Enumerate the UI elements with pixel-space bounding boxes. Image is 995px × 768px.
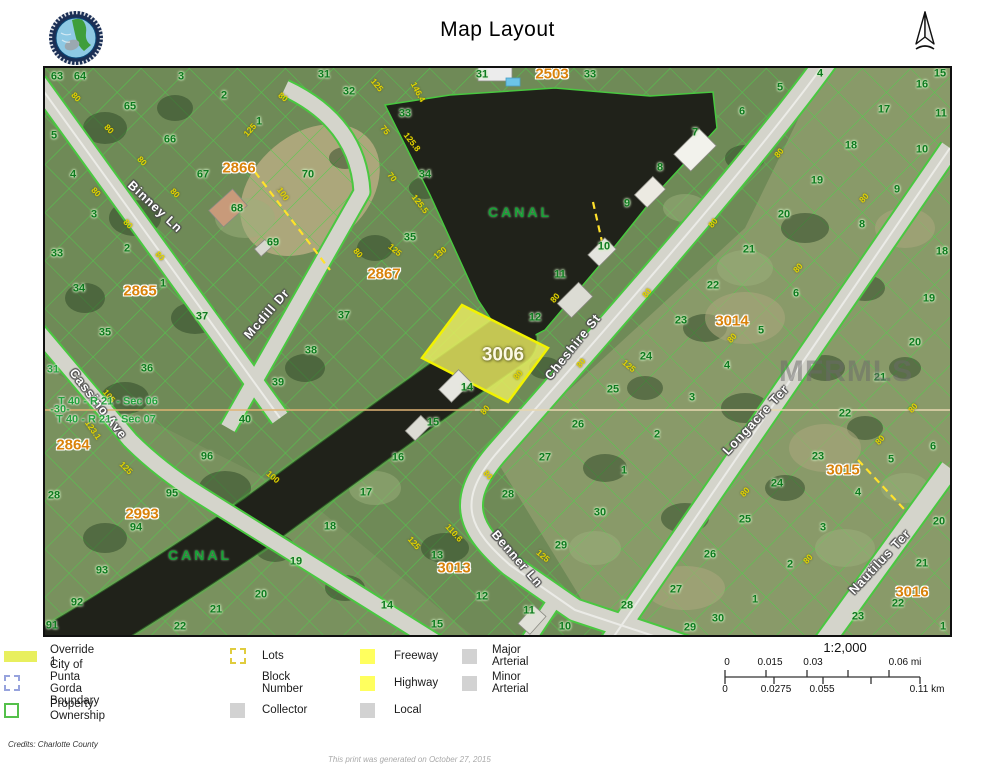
legend-label: Collector: [262, 704, 307, 716]
legend-swatch-yellow: [360, 649, 375, 664]
scale-km-label: 0.055: [809, 684, 834, 695]
legend-swatch-dashblue: [4, 675, 20, 691]
legend-item-lots: Lots: [230, 645, 246, 667]
legend-item-local: Local: [360, 699, 375, 721]
legend-swatch-yellow: [360, 676, 375, 691]
scale-bar: [700, 638, 990, 708]
legend-swatch-gray: [230, 703, 245, 718]
north-arrow: [905, 8, 945, 64]
legend-label: Property Ownership: [50, 698, 105, 722]
legend-label: Local: [394, 704, 422, 716]
legend-item-collector: Collector: [230, 699, 245, 721]
legend-item-minor-arterial: Minor Arterial: [462, 672, 477, 694]
scale-km-label: 0.11 km: [910, 684, 945, 695]
legend-swatch-gray: [462, 676, 477, 691]
map-frame: 6364321656667686970313254323334353628137…: [43, 66, 952, 637]
scale-mi-label: 0.03: [803, 657, 822, 668]
legend-label: Block Number: [262, 671, 303, 695]
legend-swatch-gray: [360, 703, 375, 718]
print-note: This print was generated on October 27, …: [328, 755, 491, 764]
page-title: Map Layout: [0, 18, 995, 42]
legend-label: Major Arterial: [492, 644, 528, 668]
legend-swatch-override: [4, 651, 37, 662]
map-layout-page: Map Layout: [0, 0, 995, 768]
legend-item-freeway: Freeway: [360, 645, 375, 667]
legend: Override 1City of Punta Gorda BoundaryPr…: [0, 640, 700, 730]
scale-mi-label: 0.015: [757, 657, 782, 668]
legend-label: Lots: [262, 650, 284, 662]
legend-item-override-1: Override 1: [4, 645, 37, 667]
legend-item-city-of-punta-gorda-boundary: City of Punta Gorda Boundary: [4, 672, 20, 694]
map-canvas[interactable]: 6364321656667686970313254323334353628137…: [45, 68, 950, 635]
legend-swatch-dashyellow: [230, 648, 246, 664]
scale-mi-label: 0.06 mi: [889, 657, 922, 668]
legend-item-major-arterial: Major Arterial: [462, 645, 477, 667]
legend-label: Minor Arterial: [492, 671, 528, 695]
aerial-map-art: [45, 68, 950, 635]
scale-km-label: 0.0275: [761, 684, 792, 695]
legend-swatch-outlinegreen: [4, 703, 19, 718]
scale-block: 1:2,000 00.0150.030.06 mi00.02750.0550.1…: [700, 638, 990, 708]
legend-swatch-gray: [462, 649, 477, 664]
legend-label: Freeway: [394, 650, 438, 662]
scale-mi-label: 0: [724, 657, 730, 668]
legend-item-property-ownership: Property Ownership: [4, 699, 19, 721]
legend-label: Highway: [394, 677, 438, 689]
legend-item-highway: Highway: [360, 672, 375, 694]
scale-km-label: 0: [722, 684, 728, 695]
credits: Credits: Charlotte County: [8, 740, 98, 749]
